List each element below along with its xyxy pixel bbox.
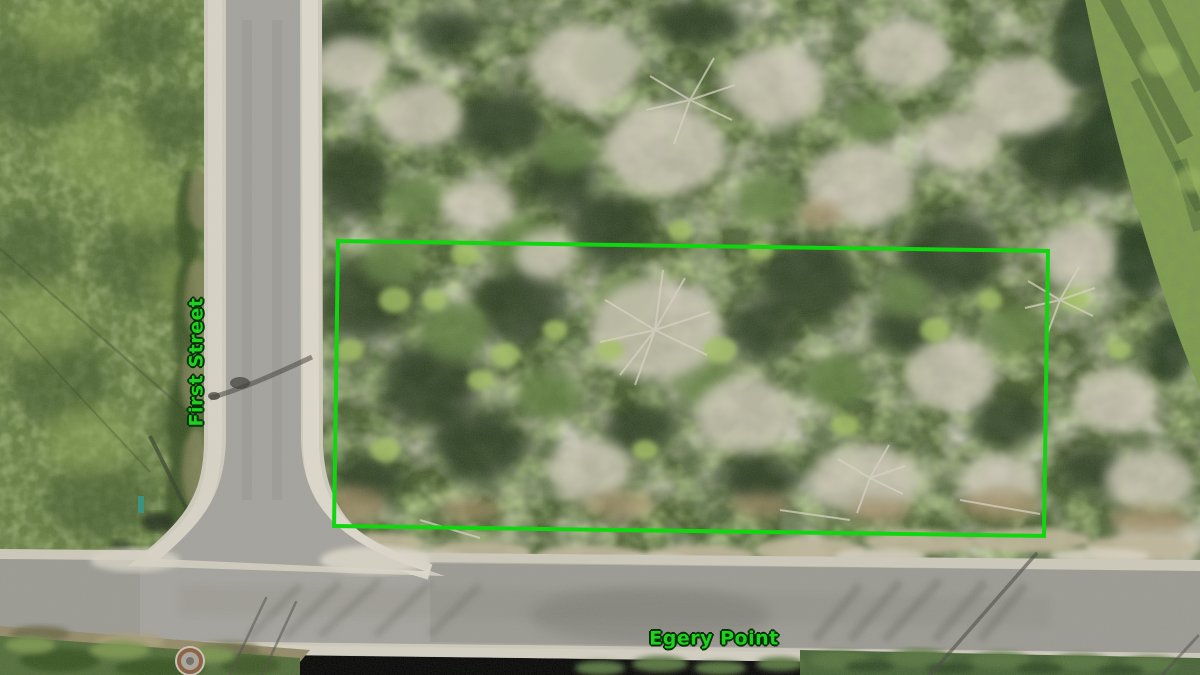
- street-label-egery-point: Egery Point: [649, 630, 778, 649]
- street-label-first-street: First Street: [188, 298, 207, 427]
- aerial-photo-viewport: First Street Egery Point: [0, 0, 1200, 675]
- property-boundary-outline: [332, 239, 1050, 538]
